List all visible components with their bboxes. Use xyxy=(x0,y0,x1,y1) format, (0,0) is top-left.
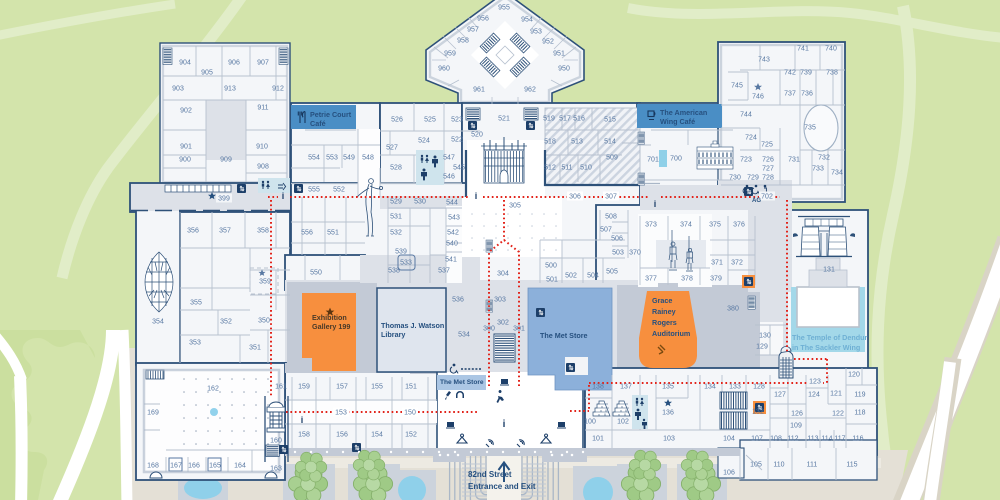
svg-text:732: 732 xyxy=(818,155,830,162)
svg-text:305: 305 xyxy=(509,203,521,210)
svg-text:118: 118 xyxy=(854,410,865,417)
svg-text:162: 162 xyxy=(207,386,219,393)
svg-text:104: 104 xyxy=(723,436,735,443)
svg-text:Petrie Court: Petrie Court xyxy=(310,110,352,119)
svg-text:734: 734 xyxy=(831,170,843,177)
svg-text:119: 119 xyxy=(854,392,865,399)
svg-text:Auditorium: Auditorium xyxy=(652,329,690,338)
svg-text:700: 700 xyxy=(670,156,682,163)
svg-text:358: 358 xyxy=(257,228,269,235)
svg-text:133: 133 xyxy=(729,384,741,391)
svg-text:114: 114 xyxy=(821,436,832,443)
svg-text:503: 503 xyxy=(612,250,624,257)
svg-text:352: 352 xyxy=(220,319,232,326)
svg-text:153: 153 xyxy=(335,410,347,417)
svg-text:115: 115 xyxy=(846,462,857,469)
svg-text:106: 106 xyxy=(723,470,735,477)
svg-text:901: 901 xyxy=(180,144,192,151)
svg-text:547: 547 xyxy=(443,155,455,162)
svg-text:116: 116 xyxy=(852,436,863,443)
svg-text:135: 135 xyxy=(662,384,674,391)
svg-text:303: 303 xyxy=(494,297,506,304)
svg-text:82nd Street: 82nd Street xyxy=(468,470,512,479)
svg-text:374: 374 xyxy=(680,222,692,229)
svg-text:Café: Café xyxy=(310,119,326,128)
svg-text:909: 909 xyxy=(220,157,232,164)
svg-text:530: 530 xyxy=(414,199,426,206)
svg-text:The Temple of Dendur: The Temple of Dendur xyxy=(792,333,868,342)
svg-text:355: 355 xyxy=(190,300,202,307)
svg-text:509: 509 xyxy=(606,155,618,162)
svg-text:542: 542 xyxy=(447,230,459,237)
svg-text:723: 723 xyxy=(740,157,752,164)
svg-text:536: 536 xyxy=(452,297,464,304)
svg-text:516: 516 xyxy=(573,116,585,123)
svg-text:121: 121 xyxy=(830,391,842,398)
svg-text:378: 378 xyxy=(681,276,693,283)
svg-text:380: 380 xyxy=(727,306,739,313)
svg-text:702: 702 xyxy=(761,194,773,201)
svg-text:527: 527 xyxy=(386,145,398,152)
svg-text:154: 154 xyxy=(371,432,383,439)
svg-text:520: 520 xyxy=(471,132,483,139)
svg-text:166: 166 xyxy=(188,463,200,470)
svg-text:951: 951 xyxy=(553,51,565,58)
svg-text:543: 543 xyxy=(448,215,460,222)
svg-text:110: 110 xyxy=(773,462,784,469)
svg-text:Exhibition: Exhibition xyxy=(312,313,347,322)
svg-text:731: 731 xyxy=(788,157,800,164)
svg-text:124: 124 xyxy=(808,392,820,399)
svg-text:728: 728 xyxy=(762,175,774,182)
svg-text:307: 307 xyxy=(605,194,617,201)
svg-text:117: 117 xyxy=(834,436,845,443)
svg-text:544: 544 xyxy=(446,200,458,207)
svg-text:AG: AG xyxy=(752,198,761,204)
svg-text:504: 504 xyxy=(587,273,599,280)
svg-text:532: 532 xyxy=(390,230,402,237)
svg-text:742: 742 xyxy=(784,70,796,77)
svg-text:506: 506 xyxy=(611,236,623,243)
svg-text:739: 739 xyxy=(800,70,812,77)
svg-text:i: i xyxy=(503,419,506,430)
svg-text:960: 960 xyxy=(438,66,450,73)
svg-text:531: 531 xyxy=(390,214,402,221)
svg-text:372: 372 xyxy=(731,260,743,267)
svg-text:373: 373 xyxy=(645,222,657,229)
svg-text:131: 131 xyxy=(823,267,835,274)
svg-text:500: 500 xyxy=(545,263,557,270)
svg-text:954: 954 xyxy=(521,17,533,24)
svg-text:553: 553 xyxy=(326,155,338,162)
svg-text:725: 725 xyxy=(761,142,773,149)
svg-text:Gallery 199: Gallery 199 xyxy=(312,322,350,331)
svg-text:Thomas J. Watson: Thomas J. Watson xyxy=(381,321,444,330)
svg-text:539: 539 xyxy=(395,249,407,256)
svg-text:523: 523 xyxy=(451,117,463,124)
svg-text:375: 375 xyxy=(709,222,721,229)
svg-text:746: 746 xyxy=(752,94,764,101)
svg-text:910: 910 xyxy=(256,144,268,151)
svg-text:111: 111 xyxy=(807,462,818,469)
svg-text:359: 359 xyxy=(259,279,271,286)
svg-text:371: 371 xyxy=(711,260,723,267)
svg-text:552: 552 xyxy=(333,187,345,194)
svg-text:i: i xyxy=(282,191,285,201)
svg-text:953: 953 xyxy=(530,29,542,36)
svg-text:962: 962 xyxy=(524,87,536,94)
svg-text:726: 726 xyxy=(762,157,774,164)
svg-text:505: 505 xyxy=(606,269,618,276)
svg-text:123: 123 xyxy=(809,379,821,386)
svg-text:961: 961 xyxy=(473,87,485,94)
svg-text:528: 528 xyxy=(390,165,402,172)
svg-text:744: 744 xyxy=(740,112,752,119)
svg-text:112: 112 xyxy=(787,436,798,443)
svg-text:533: 533 xyxy=(400,260,412,267)
svg-text:912: 912 xyxy=(272,86,284,93)
svg-text:908: 908 xyxy=(257,164,269,171)
svg-text:165: 165 xyxy=(209,463,221,470)
svg-text:102: 102 xyxy=(617,419,629,426)
svg-text:701: 701 xyxy=(647,157,659,164)
svg-text:526: 526 xyxy=(391,117,403,124)
svg-text:906: 906 xyxy=(228,60,240,67)
svg-text:155: 155 xyxy=(371,384,383,391)
svg-text:546: 546 xyxy=(443,174,455,181)
svg-text:103: 103 xyxy=(663,436,675,443)
svg-text:Entrance and Exit: Entrance and Exit xyxy=(468,482,536,491)
svg-text:733: 733 xyxy=(812,166,824,173)
svg-text:379: 379 xyxy=(710,276,722,283)
svg-text:738: 738 xyxy=(826,70,838,77)
svg-text:741: 741 xyxy=(797,46,809,53)
svg-text:164: 164 xyxy=(234,463,246,470)
svg-text:517: 517 xyxy=(559,116,571,123)
svg-text:Rainey: Rainey xyxy=(652,307,676,316)
svg-text:300: 300 xyxy=(483,326,495,333)
svg-text:515: 515 xyxy=(604,117,616,124)
svg-text:108: 108 xyxy=(770,436,782,443)
svg-text:150: 150 xyxy=(404,410,416,417)
svg-text:955: 955 xyxy=(498,5,510,12)
svg-text:161: 161 xyxy=(275,384,287,391)
svg-text:508: 508 xyxy=(605,214,617,221)
svg-text:109: 109 xyxy=(790,423,802,430)
svg-text:555: 555 xyxy=(308,187,320,194)
svg-text:513: 513 xyxy=(571,139,583,146)
svg-text:514: 514 xyxy=(604,139,616,146)
svg-text:The Met Store: The Met Store xyxy=(540,331,588,340)
svg-text:136: 136 xyxy=(662,410,674,417)
svg-text:306: 306 xyxy=(569,194,581,201)
svg-text:524: 524 xyxy=(418,138,430,145)
svg-text:163: 163 xyxy=(270,466,282,473)
svg-text:122: 122 xyxy=(832,411,844,418)
svg-text:158: 158 xyxy=(298,432,310,439)
svg-text:The American: The American xyxy=(660,108,707,117)
svg-text:541: 541 xyxy=(445,257,457,264)
svg-text:745: 745 xyxy=(731,83,743,90)
svg-text:126: 126 xyxy=(791,411,803,418)
svg-text:902: 902 xyxy=(180,108,192,115)
svg-text:301: 301 xyxy=(513,326,525,333)
svg-text:i: i xyxy=(654,199,657,209)
svg-text:548: 548 xyxy=(362,155,374,162)
svg-text:351: 351 xyxy=(249,345,261,352)
svg-text:950: 950 xyxy=(558,66,570,73)
svg-text:730: 730 xyxy=(729,175,741,182)
svg-text:904: 904 xyxy=(179,60,191,67)
svg-text:350: 350 xyxy=(258,318,270,325)
svg-text:956: 956 xyxy=(477,16,489,23)
svg-text:132: 132 xyxy=(752,409,764,416)
svg-text:The Met Store: The Met Store xyxy=(440,379,484,386)
svg-text:152: 152 xyxy=(405,432,417,439)
svg-text:356: 356 xyxy=(187,228,199,235)
svg-text:354: 354 xyxy=(152,319,164,326)
svg-text:510: 510 xyxy=(580,165,592,172)
svg-text:Rogers: Rogers xyxy=(652,318,677,327)
svg-text:120: 120 xyxy=(848,372,860,379)
svg-text:399: 399 xyxy=(218,196,230,203)
svg-text:107: 107 xyxy=(751,436,763,443)
svg-text:160: 160 xyxy=(270,438,282,445)
svg-text:127: 127 xyxy=(774,392,786,399)
svg-text:545: 545 xyxy=(453,165,465,172)
svg-text:534: 534 xyxy=(458,332,470,339)
svg-text:549: 549 xyxy=(343,155,355,162)
svg-text:525: 525 xyxy=(424,117,436,124)
svg-text:100: 100 xyxy=(584,419,596,426)
svg-text:357: 357 xyxy=(219,228,231,235)
svg-text:159: 159 xyxy=(298,384,310,391)
svg-text:i: i xyxy=(475,191,478,201)
svg-text:Grace: Grace xyxy=(652,296,672,305)
svg-text:501: 501 xyxy=(546,277,558,284)
svg-text:529: 529 xyxy=(390,199,402,206)
svg-text:in The Sackler Wing: in The Sackler Wing xyxy=(792,343,860,352)
svg-text:727: 727 xyxy=(762,166,774,173)
svg-text:Library: Library xyxy=(381,330,405,339)
svg-text:907: 907 xyxy=(257,60,269,67)
svg-text:522: 522 xyxy=(451,137,463,144)
svg-text:167: 167 xyxy=(170,463,182,470)
svg-text:736: 736 xyxy=(801,91,813,98)
svg-text:554: 554 xyxy=(308,155,320,162)
svg-text:Wing Café: Wing Café xyxy=(660,117,695,126)
svg-text:900: 900 xyxy=(179,157,191,164)
svg-text:957: 957 xyxy=(467,27,479,34)
svg-text:540: 540 xyxy=(446,241,458,248)
svg-text:737: 737 xyxy=(784,91,796,98)
svg-text:913: 913 xyxy=(224,86,236,93)
svg-text:128: 128 xyxy=(753,384,765,391)
svg-text:905: 905 xyxy=(201,70,213,77)
svg-text:377: 377 xyxy=(645,276,657,283)
svg-text:903: 903 xyxy=(172,86,184,93)
svg-text:302: 302 xyxy=(497,320,509,327)
svg-text:729: 729 xyxy=(747,175,759,182)
svg-text:512: 512 xyxy=(544,165,556,172)
svg-text:376: 376 xyxy=(733,222,745,229)
svg-text:519: 519 xyxy=(543,116,555,123)
svg-text:151: 151 xyxy=(405,384,417,391)
svg-text:724: 724 xyxy=(745,135,757,142)
svg-text:743: 743 xyxy=(758,57,770,64)
svg-text:304: 304 xyxy=(497,271,509,278)
svg-text:138: 138 xyxy=(592,384,604,391)
svg-text:502: 502 xyxy=(565,273,577,280)
svg-text:518: 518 xyxy=(544,139,556,146)
svg-text:521: 521 xyxy=(498,116,510,123)
svg-text:130: 130 xyxy=(759,333,771,340)
svg-text:952: 952 xyxy=(542,39,554,46)
svg-text:507: 507 xyxy=(600,227,612,234)
svg-text:113: 113 xyxy=(807,436,818,443)
svg-text:134: 134 xyxy=(704,384,716,391)
svg-text:537: 537 xyxy=(438,268,450,275)
svg-text:157: 157 xyxy=(336,384,348,391)
svg-text:156: 156 xyxy=(336,432,348,439)
svg-text:129: 129 xyxy=(756,344,768,351)
svg-text:538: 538 xyxy=(388,268,400,275)
svg-text:168: 168 xyxy=(147,463,159,470)
svg-text:556: 556 xyxy=(301,230,313,237)
svg-text:740: 740 xyxy=(825,46,837,53)
svg-text:911: 911 xyxy=(257,105,268,112)
svg-text:511: 511 xyxy=(561,165,572,172)
svg-text:370: 370 xyxy=(629,250,641,257)
svg-text:959: 959 xyxy=(444,51,456,58)
svg-text:550: 550 xyxy=(310,270,322,277)
svg-text:169: 169 xyxy=(147,410,159,417)
svg-text:101: 101 xyxy=(592,436,604,443)
svg-text:137: 137 xyxy=(620,384,632,391)
svg-text:353: 353 xyxy=(189,340,201,347)
svg-text:735: 735 xyxy=(804,125,816,132)
svg-text:i: i xyxy=(301,415,304,425)
svg-text:551: 551 xyxy=(327,230,339,237)
svg-text:958: 958 xyxy=(457,38,469,45)
svg-text:105: 105 xyxy=(750,462,762,469)
